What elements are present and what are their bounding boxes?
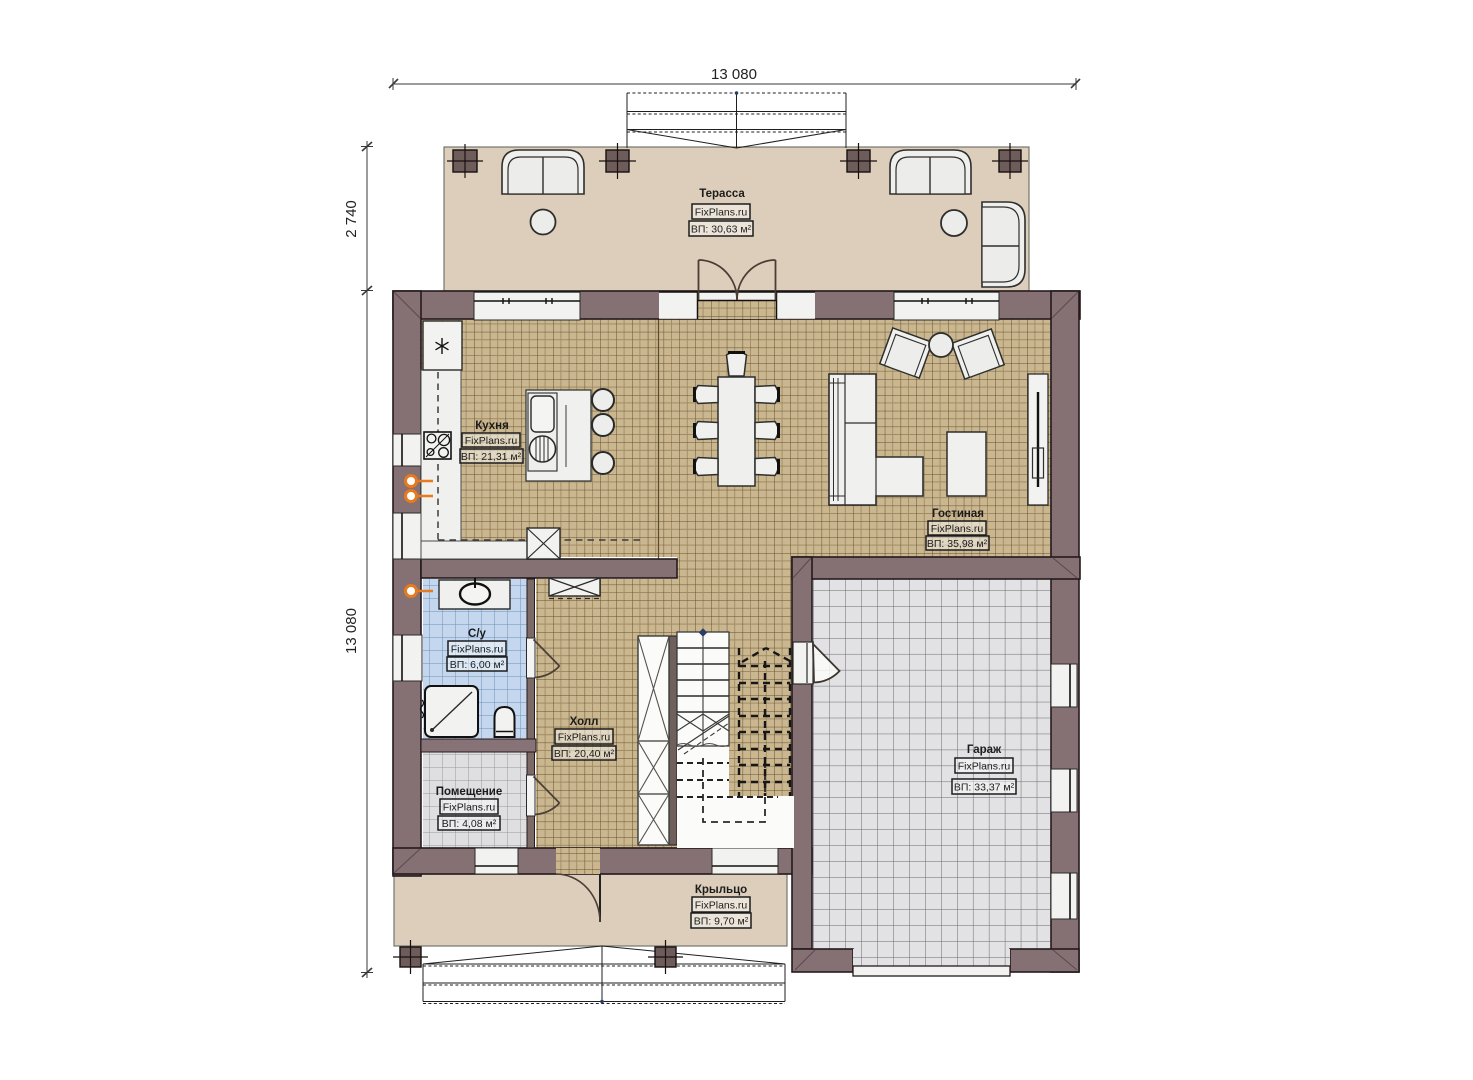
svg-text:ВП: 20,40 м²: ВП: 20,40 м² [554, 748, 615, 760]
svg-text:FixPlans.ru: FixPlans.ru [465, 435, 518, 447]
svg-text:Кухня: Кухня [475, 420, 509, 432]
svg-text:ВП: 35,98 м²: ВП: 35,98 м² [927, 538, 988, 550]
svg-text:FixPlans.ru: FixPlans.ru [451, 644, 504, 656]
svg-text:13 080: 13 080 [343, 608, 360, 654]
svg-text:ВП: 4,08 м²: ВП: 4,08 м² [442, 818, 497, 830]
svg-text:Гараж: Гараж [967, 744, 1002, 756]
svg-text:Крыльцо: Крыльцо [695, 884, 747, 896]
svg-text:ВП: 30,63 м²: ВП: 30,63 м² [691, 224, 752, 236]
svg-text:13 080: 13 080 [711, 66, 757, 83]
svg-text:Холл: Холл [570, 716, 599, 728]
svg-text:FixPlans.ru: FixPlans.ru [695, 207, 748, 219]
svg-text:ВП: 33,37 м²: ВП: 33,37 м² [954, 782, 1015, 794]
svg-text:ВП: 21,31 м²: ВП: 21,31 м² [461, 451, 522, 463]
svg-text:ВП: 9,70 м²: ВП: 9,70 м² [694, 916, 749, 928]
svg-text:FixPlans.ru: FixPlans.ru [931, 523, 984, 535]
svg-text:Гостиная: Гостиная [932, 508, 984, 520]
svg-text:FixPlans.ru: FixPlans.ru [958, 761, 1011, 773]
svg-text:FixPlans.ru: FixPlans.ru [443, 802, 496, 814]
svg-text:Помещение: Помещение [436, 786, 503, 798]
svg-text:Терасса: Терасса [699, 188, 745, 200]
svg-text:2 740: 2 740 [343, 200, 360, 238]
svg-text:ВП: 6,00 м²: ВП: 6,00 м² [450, 659, 505, 671]
svg-text:FixPlans.ru: FixPlans.ru [695, 900, 748, 912]
svg-text:С/у: С/у [468, 628, 487, 640]
svg-text:FixPlans.ru: FixPlans.ru [558, 732, 611, 744]
